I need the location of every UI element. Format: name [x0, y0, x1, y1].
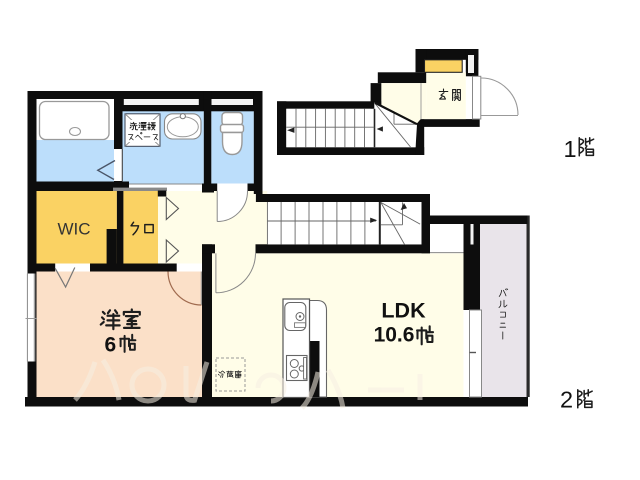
svg-text:2: 2 — [560, 387, 573, 413]
svg-text:10.6: 10.6 — [374, 324, 415, 347]
svg-text:LDK: LDK — [381, 299, 426, 323]
svg-text:1: 1 — [564, 136, 577, 162]
svg-text:6: 6 — [105, 334, 117, 357]
svg-text:WIC: WIC — [57, 220, 90, 239]
